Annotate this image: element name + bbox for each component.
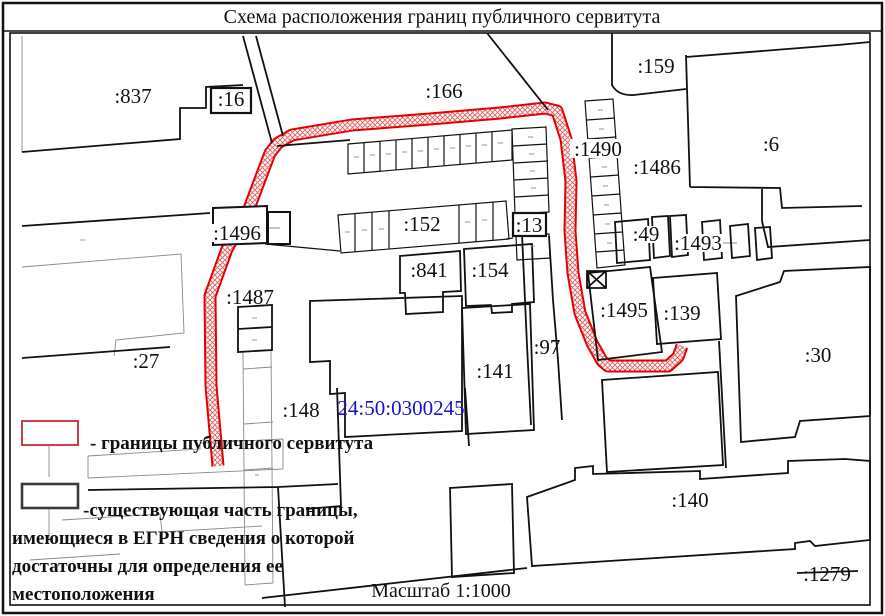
legend-existing-line-3: достаточны для определения ее bbox=[12, 556, 283, 577]
legend-existing-line-2: имеющиеся в ЕГРН сведения о которой bbox=[12, 528, 355, 549]
garage-row-152 bbox=[265, 201, 513, 253]
garage-column-1490 bbox=[585, 99, 625, 268]
parcel-140-boundary bbox=[527, 459, 870, 566]
parcel-label-841: :841 bbox=[410, 258, 447, 282]
parcel-label-6: :6 bbox=[763, 132, 779, 156]
parcel-97-boundary bbox=[522, 234, 562, 425]
parcel-label-166: :166 bbox=[425, 79, 462, 103]
parcel-label-159: :159 bbox=[637, 54, 674, 78]
parcel-label-148: :148 bbox=[282, 398, 319, 422]
parcel-label-1493: :1493 bbox=[674, 231, 722, 255]
parcel-label-1487: :1487 bbox=[226, 285, 274, 309]
parcel-label-1495: :1495 bbox=[600, 298, 648, 322]
legend-existing-swatch bbox=[22, 484, 78, 508]
detail-strip bbox=[243, 350, 273, 585]
parcel-label-27: :27 bbox=[133, 349, 160, 373]
parcel-below-1495 bbox=[602, 372, 723, 472]
parcel-label-16: :16 bbox=[218, 87, 245, 111]
legend-existing-line-1: -существующая часть границы, bbox=[83, 500, 358, 521]
page-title: Схема расположения границ публичного сер… bbox=[224, 6, 661, 28]
parcel-label-139: :139 bbox=[663, 301, 700, 325]
cadastral-quarter-label: 24:50:0300245 bbox=[337, 396, 464, 420]
legend-servitude-swatch bbox=[22, 421, 78, 445]
parcel-label-152: :152 bbox=[403, 212, 440, 236]
parcel-label-49: :49 bbox=[633, 222, 660, 246]
cell-marks bbox=[80, 110, 612, 475]
leader-line bbox=[262, 228, 737, 243]
parcel-label-30: :30 bbox=[805, 343, 832, 367]
parcel-label-97: :97 bbox=[534, 335, 561, 359]
parcel-1487-cells bbox=[238, 305, 272, 352]
legend-servitude-label: - границы публичного сервитута bbox=[90, 433, 374, 454]
parcel-30-boundary bbox=[736, 267, 870, 442]
parcel-label-1496: :1496 bbox=[213, 221, 261, 245]
garage-row-upper bbox=[348, 130, 512, 174]
parcel-label-141: :141 bbox=[476, 359, 513, 383]
parcel-label-1486: :1486 bbox=[633, 155, 681, 179]
map-canvas: Схема расположения границ публичного сер… bbox=[0, 0, 885, 616]
cadastral-scheme-page: Схема расположения границ публичного сер… bbox=[0, 0, 885, 616]
detail-line bbox=[22, 254, 184, 356]
parcel-label-1279: :1279 bbox=[803, 562, 851, 586]
parcel-label-837: :837 bbox=[114, 84, 151, 108]
legend: - границы публичного сервитута -существу… bbox=[12, 421, 374, 605]
parcel-label-13: :13 bbox=[516, 213, 543, 237]
parcel-label-140: :140 bbox=[671, 488, 708, 512]
parcel-label-154: :154 bbox=[471, 258, 509, 282]
legend-existing-line-4: местоположения bbox=[12, 584, 155, 605]
parcel-label-1490: :1490 bbox=[574, 137, 622, 161]
scale-label: Масштаб 1:1000 bbox=[371, 580, 511, 602]
garage-column-right bbox=[512, 127, 550, 260]
